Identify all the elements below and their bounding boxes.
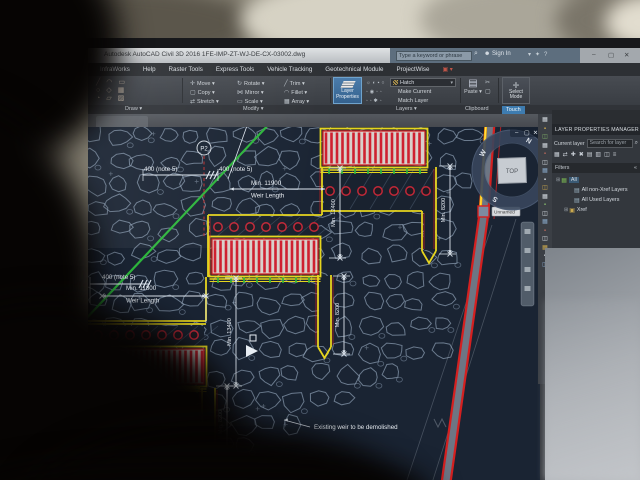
palette-title: LAYER PROPERTIES MANAGER xyxy=(555,127,639,133)
match-layer-button[interactable]: Match Layer xyxy=(398,98,428,104)
palette-tool-icon[interactable]: ▪ xyxy=(541,126,549,133)
trim-button[interactable]: ╱Trim ▾ xyxy=(284,80,305,87)
tree-item-xref[interactable]: ⊞▣Xref xyxy=(552,205,640,215)
expand-icon[interactable]: ⊞ xyxy=(556,177,560,183)
expand-icon[interactable]: ⊞ xyxy=(564,207,568,213)
stretch-icon: ⇄ xyxy=(190,98,195,105)
make-current-button[interactable]: Make Current xyxy=(398,89,431,95)
annotation-label: Min. 11800 xyxy=(126,285,157,292)
palette-tool-icon[interactable]: ▪ xyxy=(541,177,549,184)
chevron-down-icon: ▾ xyxy=(450,80,453,86)
layer-group-icon: ▤ xyxy=(574,197,580,204)
file-tab[interactable] xyxy=(96,116,148,127)
sign-in-button[interactable]: ☻ Sign In xyxy=(484,51,511,57)
move-button[interactable]: ✛Move ▾ xyxy=(190,80,215,87)
tree-item-all[interactable]: ⊞▦All xyxy=(552,175,640,185)
ribbon-tab-raster-tools[interactable]: Raster Tools xyxy=(169,66,203,73)
palette-tool-icon[interactable]: ▪ xyxy=(541,228,549,235)
palette-tool-icon[interactable]: ▪ xyxy=(541,151,549,158)
palette-tool-icon[interactable]: ▦ xyxy=(541,143,549,150)
ribbon-separator xyxy=(330,78,331,103)
array-icon: ▦ xyxy=(284,98,290,105)
draw-panel-label[interactable]: Draw ▾ xyxy=(125,106,142,112)
navigation-bar[interactable] xyxy=(521,222,534,306)
infocenter-icons[interactable]: ▾✦? xyxy=(528,51,551,58)
stretch-button[interactable]: ⇄Stretch ▾ xyxy=(190,98,219,105)
scale-button[interactable]: ▭Scale ▾ xyxy=(237,98,263,105)
defocus-overlay xyxy=(545,300,640,480)
layer-toggle-icons[interactable]: ☼◐▪○ xyxy=(366,80,386,86)
palette-tool-icon[interactable]: ▦ xyxy=(541,168,549,175)
annotation-label: 400 (note 5) xyxy=(144,166,177,173)
annotation-label: 400 (note 5) xyxy=(102,274,135,281)
palette-tool-icon[interactable]: ◫ xyxy=(541,236,549,243)
palette-tool-icon[interactable]: ◫ xyxy=(541,211,549,218)
search-icon[interactable]: ⌕ xyxy=(635,140,638,147)
tree-item-all-non-xref-layers[interactable]: ▤All non-Xref Layers xyxy=(552,185,640,195)
annotation-label: P2 xyxy=(200,147,208,153)
user-icon: ☻ xyxy=(484,51,490,57)
filters-label: Filters xyxy=(555,165,569,171)
palette-header: LAYER PROPERTIES MANAGER xyxy=(552,124,640,135)
filters-bar[interactable]: Filters « xyxy=(552,163,640,173)
layers-panel-label[interactable]: Layers ▾ xyxy=(396,106,417,112)
mirror-icon: ⋈ xyxy=(237,89,243,96)
window-title: Autodesk AutoCAD Civil 3D 2016 1FE-IMP-Z… xyxy=(104,51,305,58)
palette-tool-icon[interactable]: ◫ xyxy=(541,160,549,167)
clipboard-panel-label[interactable]: Clipboard xyxy=(465,106,489,112)
ribbon-extra-icon[interactable]: ▣ ▾ xyxy=(442,66,452,73)
scale-icon: ▭ xyxy=(237,98,243,105)
touch-panel-label[interactable]: Touch xyxy=(502,106,525,114)
ribbon-tab-row: ▣ ▾ InfraWorksHelpRaster ToolsExpress To… xyxy=(88,63,640,76)
svg-text:TOP: TOP xyxy=(506,169,518,175)
rotate-button[interactable]: ↻Rotate ▾ xyxy=(237,80,265,87)
mirror-button[interactable]: ⋈Mirror ▾ xyxy=(237,89,264,96)
ribbon-tab-express-tools[interactable]: Express Tools xyxy=(216,66,254,73)
array-button[interactable]: ▦Array ▾ xyxy=(284,98,309,105)
copy-icon: ▢ xyxy=(190,89,196,96)
annotation-label: Existing weir to be demolished xyxy=(314,424,398,431)
annotation-label: Min. 8200 xyxy=(335,303,341,328)
close-button[interactable]: ✕ xyxy=(624,51,629,59)
layer-color-swatch xyxy=(393,80,398,85)
drawing-window-buttons[interactable]: –▢✕ xyxy=(510,127,540,137)
annotation-label: Min. 11900 xyxy=(251,180,282,187)
ribbon-separator xyxy=(498,78,499,103)
annotation-label: Min. 13400 xyxy=(227,318,233,346)
layer-select-dropdown[interactable]: Hatch ▾ xyxy=(390,78,456,87)
fillet-icon: ◠ xyxy=(284,89,289,96)
photo-of-monitor: Autodesk AutoCAD Civil 3D 2016 1FE-IMP-Z… xyxy=(0,0,640,480)
ribbon-separator xyxy=(182,78,183,103)
tree-item-all-used-layers[interactable]: ▤All Used Layers xyxy=(552,195,640,205)
palette-toolbar-icons[interactable]: ▦⇄✚✖▤▥◫≡ xyxy=(554,151,638,162)
rotate-icon: ↻ xyxy=(237,80,242,87)
minimize-button[interactable]: – xyxy=(592,51,596,58)
annotation-label: Weir Length xyxy=(251,193,285,200)
restore-button[interactable]: ▢ xyxy=(608,51,614,59)
layers-stack-icon xyxy=(340,81,355,88)
cut-copy-icons[interactable]: ✂▢ xyxy=(485,79,491,97)
annotation-label: 400 (note 5) xyxy=(219,166,252,173)
infocenter-search-input[interactable]: Type a keyword or phrase xyxy=(396,51,472,61)
ribbon-separator xyxy=(460,78,461,103)
ribbon-tab-vehicle-tracking[interactable]: Vehicle Tracking xyxy=(267,66,312,73)
annotation-label: Min. 8200 xyxy=(441,198,447,223)
move-icon: ✛ xyxy=(190,80,195,87)
palette-tool-icon[interactable]: ◫ xyxy=(541,185,549,192)
palette-tool-icon[interactable]: ▦ xyxy=(541,117,549,124)
layer-tools-icons[interactable]: ◦◉◦◦ xyxy=(366,89,384,95)
trim-icon: ╱ xyxy=(284,80,288,87)
layer-group-icon: ▤ xyxy=(574,187,580,194)
layer-filter-tree: ⊞▦All▤All non-Xref Layers▤All Used Layer… xyxy=(552,175,640,215)
palette-tool-icon[interactable]: ◫ xyxy=(541,134,549,141)
layer-group-icon: ▦ xyxy=(561,177,567,184)
fillet-button[interactable]: ◠Fillet ▾ xyxy=(284,89,307,96)
select-mode-button[interactable]: ✛ SelectMode xyxy=(502,77,530,104)
layer-group-icon: ▣ xyxy=(569,207,575,214)
ribbon-tab-projectwise[interactable]: ProjectWise xyxy=(396,66,429,73)
paste-button[interactable]: ▤ Paste ▾ xyxy=(464,78,482,103)
palette-grip[interactable] xyxy=(552,110,640,124)
layer-tools-icons[interactable]: ◦◦✱◦ xyxy=(366,98,384,104)
palette-tool-icon[interactable]: ▪ xyxy=(541,202,549,209)
search-icon[interactable]: ⌕ xyxy=(474,50,478,58)
palette-tool-icon[interactable]: ▦ xyxy=(541,194,549,201)
modify-panel-label[interactable]: Modify ▾ xyxy=(243,106,264,112)
palette-tool-icon[interactable]: ▦ xyxy=(541,219,549,226)
clipboard-icon: ▤ xyxy=(468,78,477,89)
palette-current-layer-row: Current layer Search for layer ⌕ xyxy=(554,138,638,149)
copy-button[interactable]: ▢Copy ▾ xyxy=(190,89,215,96)
layer-search-input[interactable]: Search for layer xyxy=(587,139,633,148)
layer-properties-button[interactable]: LayerProperties xyxy=(333,77,362,104)
ribbon-tab-geotechnical-module[interactable]: Geotechnical Module xyxy=(325,66,383,73)
annotation-label: Weir Length xyxy=(126,298,160,305)
restore-icon[interactable]: ▢ xyxy=(524,131,530,137)
current-layer-label: Current layer xyxy=(554,141,585,147)
collapse-icon[interactable]: « xyxy=(634,165,637,171)
ribbon-tab-help[interactable]: Help xyxy=(143,66,156,73)
annotation-label: Min. 12400 xyxy=(331,199,337,227)
